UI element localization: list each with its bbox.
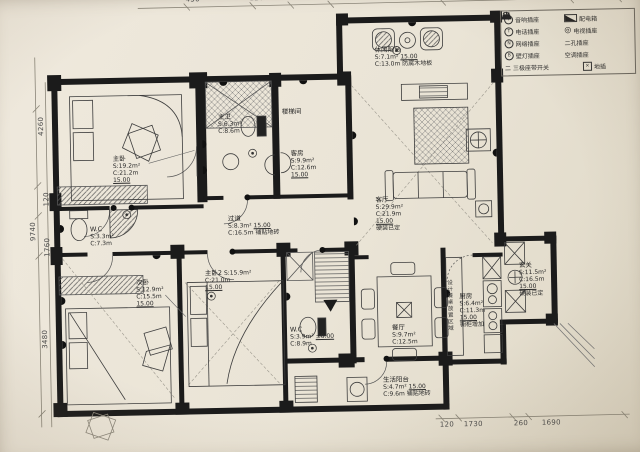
dim-left-1: 4260 bbox=[37, 113, 45, 139]
three-pole-switch-socket-icon bbox=[501, 11, 512, 20]
room-label-living: 客厅 S:29.9m² C:21.9m 15.00 硬装已定 bbox=[375, 196, 403, 232]
room-label-kitchen: 厨房 S:6.4m² C:11.3m 15.00 橱柜增加 bbox=[459, 293, 485, 328]
legend-label: 壁灯插座 bbox=[516, 50, 540, 59]
room-label-hallway: 过道 S:8.3m² 15.00 C:16.5m 铺贴地砖 bbox=[228, 215, 280, 237]
dining-set bbox=[361, 262, 449, 362]
master2-bed bbox=[187, 281, 285, 387]
floor-plan-photo: 主卧 S:19.2m² C:21.2m 15.00 主卫 S:6.3m² C:8… bbox=[0, 0, 640, 452]
washing-machine bbox=[295, 375, 367, 402]
room-label-master: 主卧 S:19.2m² C:21.2m 15.00 bbox=[113, 155, 141, 184]
legend-label: 网络插座 bbox=[515, 38, 539, 47]
room-label-stair: 楼梯间 bbox=[282, 108, 302, 115]
room-label-wc: W.C S:3.3m² C:7.3m bbox=[90, 226, 114, 247]
room-label-entry: 玄关 S:11.5m² C:16.5m 15.00 硬装已定 bbox=[519, 262, 547, 298]
wall-lamp-socket-icon: B bbox=[505, 51, 514, 60]
room-label-guest-bath: W.C S:3.9m² ±0.00 C:8.9m bbox=[290, 326, 334, 348]
dim-top-1: 450 bbox=[186, 0, 200, 4]
bedroom2-bed bbox=[66, 307, 174, 405]
dim-bottom-2: 1730 bbox=[464, 420, 483, 428]
legend-label: 配电箱 bbox=[579, 13, 597, 22]
dim-left-4: 1760 bbox=[43, 234, 51, 260]
furniture bbox=[60, 26, 528, 441]
drawing-paper: 主卧 S:19.2m² C:21.2m 15.00 主卫 S:6.3m² C:8… bbox=[0, 0, 640, 452]
room-label-master-bath: 主卫 S:6.3m² C:8.6m bbox=[218, 113, 242, 134]
room-label-bedroom2: 次卧 S:12.9m² C:15.5m 15.00 bbox=[136, 279, 164, 308]
legend-label: 空调插座 bbox=[565, 49, 589, 58]
phone-socket-icon: T bbox=[504, 27, 513, 36]
room-label-master2: 主卧2 S:15.9m² C:21.0m 15.00 bbox=[205, 269, 252, 291]
legend-label: 音响插座 bbox=[515, 14, 539, 23]
tv-socket-icon: ◎ bbox=[564, 26, 571, 34]
legend-label: 电话插座 bbox=[515, 26, 539, 35]
dim-left-2: 120 bbox=[42, 186, 50, 212]
room-label-service-balcony: 生活阳台 S:4.7m² 15.00 C:9.6m 铺贴地砖 bbox=[383, 376, 431, 398]
legend-label: 二 三极座带开关 bbox=[505, 62, 549, 72]
guest-basin bbox=[281, 153, 291, 173]
legend-box: Y音响插座 配电箱 T电话插座 ◎电视插座 N网络插座 二孔插座 B壁灯插座 空… bbox=[500, 8, 636, 77]
dim-top-2: 120 bbox=[250, 0, 264, 2]
legend-label: 地插 bbox=[594, 61, 606, 70]
room-label-leisure-balcony: 休闲阳台 S:7.1m² 15.00 C:13.0m 防腐木地板 bbox=[375, 46, 433, 68]
dim-bottom-3: 260 bbox=[514, 419, 528, 427]
legend-label: 二孔插座 bbox=[564, 37, 588, 46]
network-socket-icon: N bbox=[504, 39, 513, 48]
dining-placement-note: 设计餐桌放置区域 bbox=[445, 279, 454, 331]
room-label-dining: 餐厅 S:9.7m² C:12.5m bbox=[392, 324, 418, 345]
floor-socket-icon: × bbox=[583, 61, 592, 70]
distribution-box-icon bbox=[564, 14, 577, 22]
master-bed bbox=[69, 95, 183, 201]
dim-bottom-4: 1690 bbox=[542, 418, 561, 426]
dim-left-5: 3480 bbox=[41, 326, 49, 352]
dim-left-3: 9740 bbox=[29, 218, 37, 244]
legend-row: 二 三极座带开关 ×地插 bbox=[505, 59, 632, 73]
dim-bottom-1: 120 bbox=[440, 420, 454, 428]
room-label-guest: 客房 S:9.9m² C:12.6m 15.00 bbox=[291, 150, 317, 178]
legend-label: 电视插座 bbox=[573, 25, 597, 34]
